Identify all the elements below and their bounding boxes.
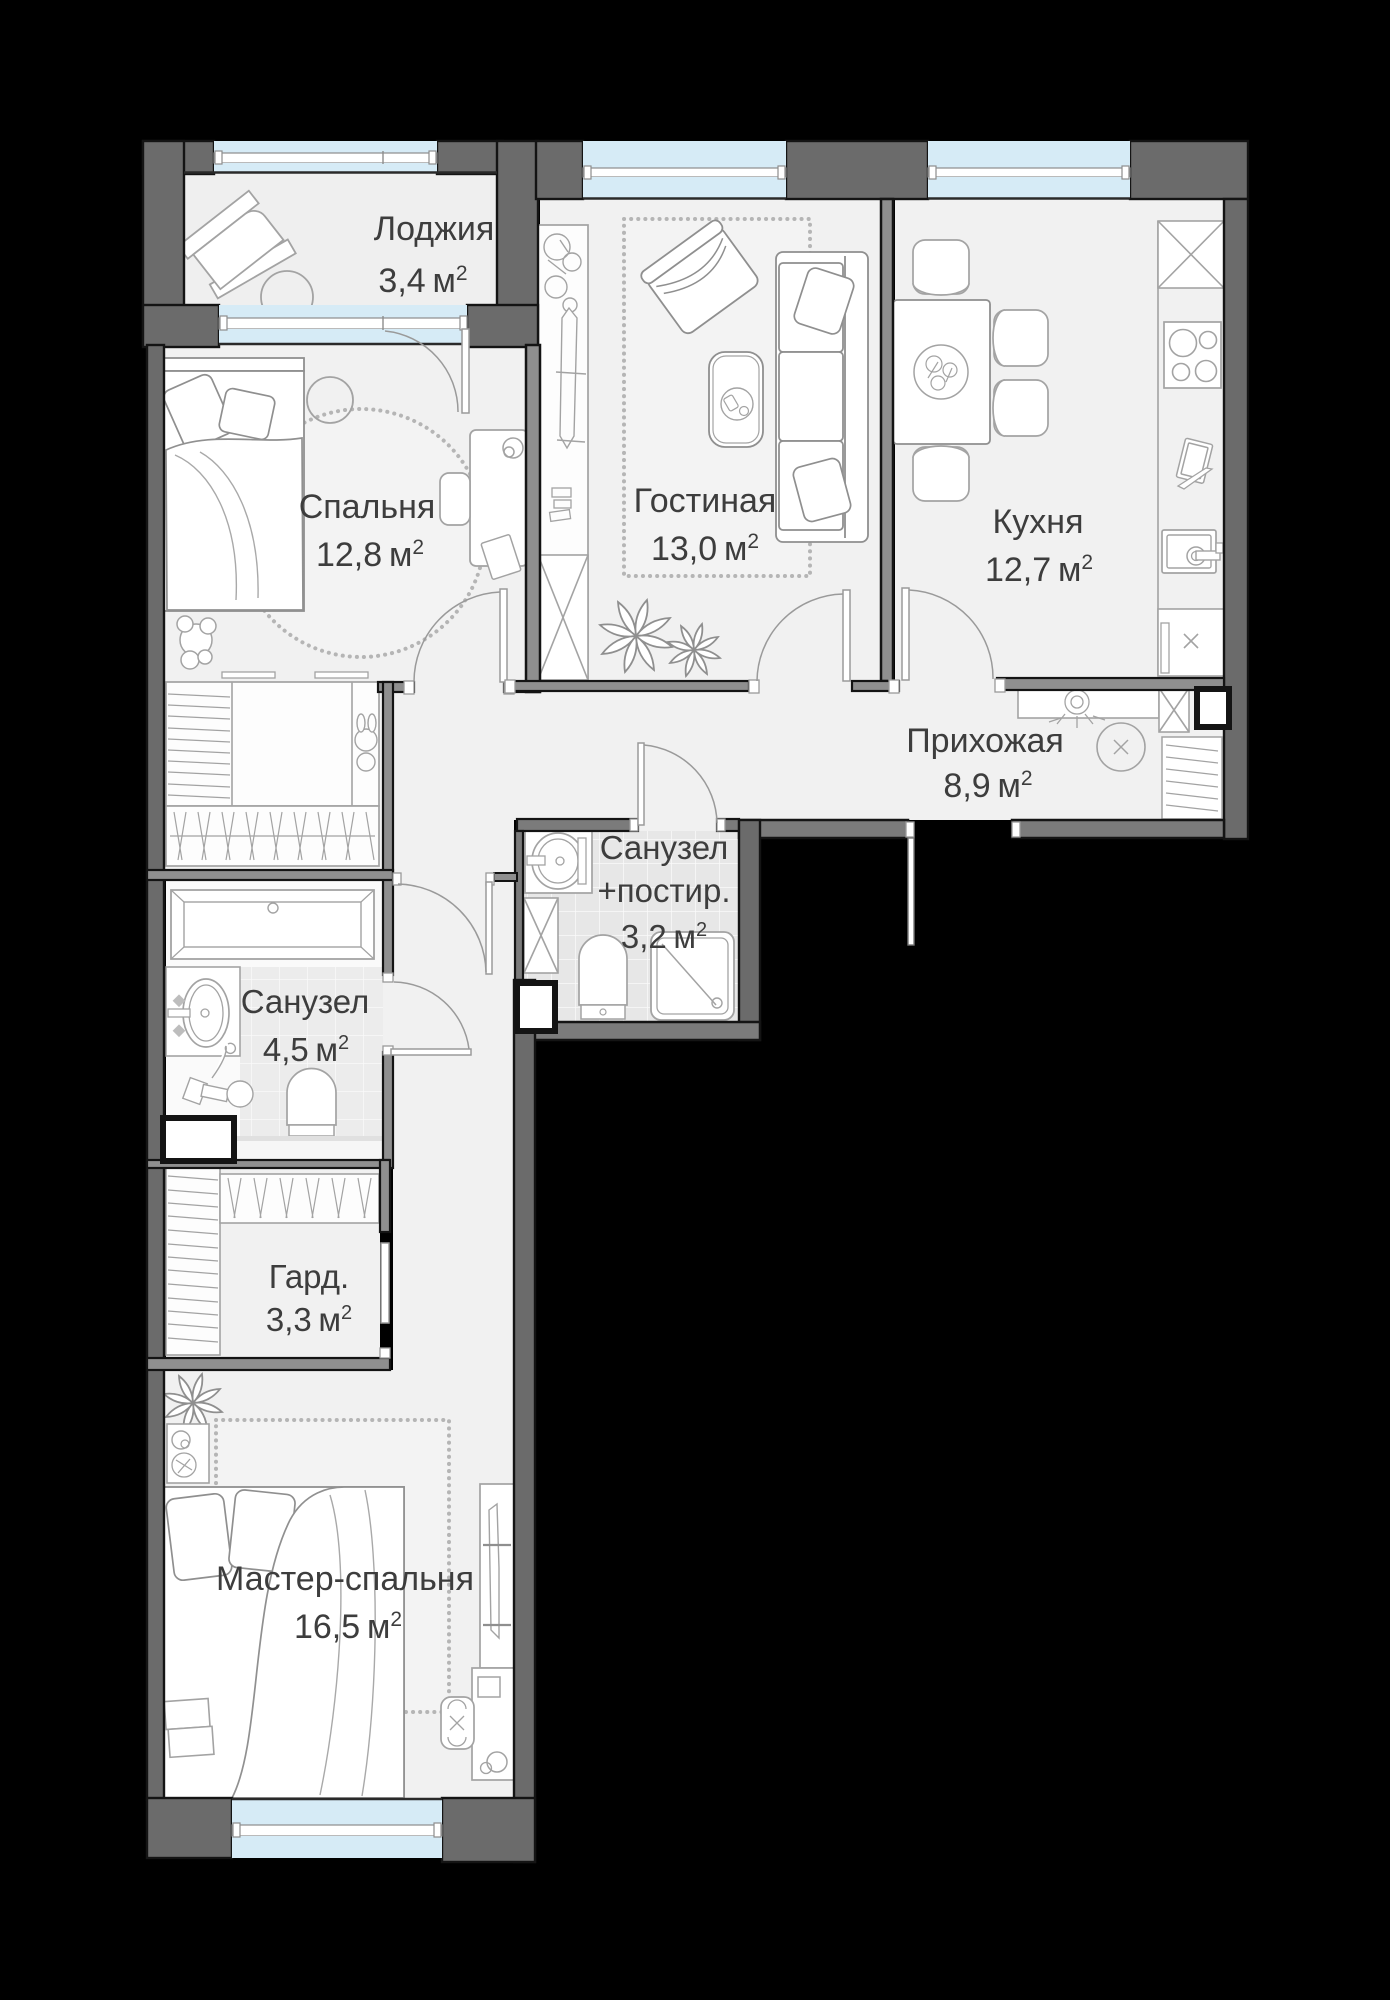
svg-text:+постир.: +постир. xyxy=(597,872,730,909)
svg-text:8,9 м2: 8,9 м2 xyxy=(943,767,1032,805)
svg-text:Спальня: Спальня xyxy=(299,488,436,526)
svg-text:Санузел: Санузел xyxy=(241,983,370,1020)
svg-text:3,2 м2: 3,2 м2 xyxy=(621,918,707,955)
svg-text:Кухня: Кухня xyxy=(993,503,1084,541)
svg-text:Санузел: Санузел xyxy=(600,829,729,866)
svg-text:16,5 м2: 16,5 м2 xyxy=(294,1608,402,1646)
svg-text:Лоджия: Лоджия xyxy=(374,210,494,248)
svg-text:Мастер-спальня: Мастер-спальня xyxy=(216,1560,474,1598)
svg-text:12,7 м2: 12,7 м2 xyxy=(985,551,1093,589)
svg-text:13,0 м2: 13,0 м2 xyxy=(651,530,759,568)
svg-text:3,3 м2: 3,3 м2 xyxy=(266,1301,352,1338)
svg-text:Прихожая: Прихожая xyxy=(906,722,1064,760)
svg-text:12,8 м2: 12,8 м2 xyxy=(316,536,424,574)
svg-text:4,5 м2: 4,5 м2 xyxy=(263,1031,349,1068)
svg-text:Гард.: Гард. xyxy=(269,1258,349,1295)
svg-text:3,4 м2: 3,4 м2 xyxy=(378,262,467,300)
svg-text:Гостиная: Гостиная xyxy=(634,482,777,520)
